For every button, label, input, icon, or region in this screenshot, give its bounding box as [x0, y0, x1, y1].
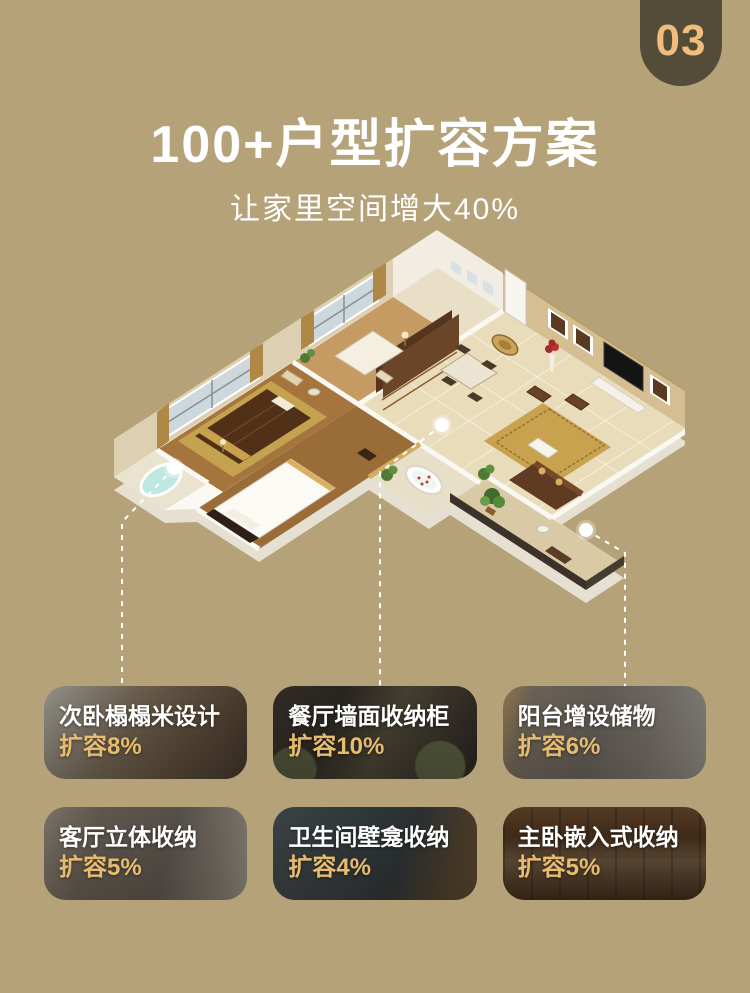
expansion-card-livingroom: 客厅立体收纳 扩容5% [44, 807, 247, 900]
expansion-card-master-bedroom: 主卧嵌入式收纳 扩容5% [503, 807, 706, 900]
card-label: 阳台增设储物 [518, 702, 696, 731]
card-value: 扩容4% [288, 852, 466, 883]
expansion-card-balcony: 阳台增设储物 扩容6% [503, 686, 706, 779]
card-value: 扩容5% [518, 852, 696, 883]
card-label: 次卧榻榻米设计 [59, 702, 237, 731]
card-value: 扩容6% [518, 731, 696, 762]
expansion-card-tatami: 次卧榻榻米设计 扩容8% [44, 686, 247, 779]
expansion-card-dining-wall: 餐厅墙面收纳柜 扩容10% [273, 686, 476, 779]
page-title: 100+户型扩容方案 [0, 102, 750, 177]
apartment-floorplan-render [65, 200, 685, 690]
expansion-cards: 次卧榻榻米设计 扩容8% 餐厅墙面收纳柜 扩容10% 阳台增设储物 扩容6% 客… [44, 686, 706, 900]
callout-dot-3 [579, 523, 593, 537]
expansion-card-bathroom: 卫生间壁龛收纳 扩容4% [273, 807, 476, 900]
card-label: 主卧嵌入式收纳 [518, 823, 696, 852]
section-number-badge: 03 [640, 0, 722, 86]
card-value: 扩容5% [59, 852, 237, 883]
card-label: 客厅立体收纳 [59, 823, 237, 852]
card-value: 扩容10% [288, 731, 466, 762]
card-label: 餐厅墙面收纳柜 [288, 702, 466, 731]
callout-dot-2 [435, 418, 449, 432]
section-number: 03 [656, 16, 707, 66]
promo-page: 03 100+户型扩容方案 让家里空间增大40% [0, 0, 750, 993]
card-label: 卫生间壁龛收纳 [288, 823, 466, 852]
card-value: 扩容8% [59, 731, 237, 762]
callout-dot-1 [167, 461, 181, 475]
